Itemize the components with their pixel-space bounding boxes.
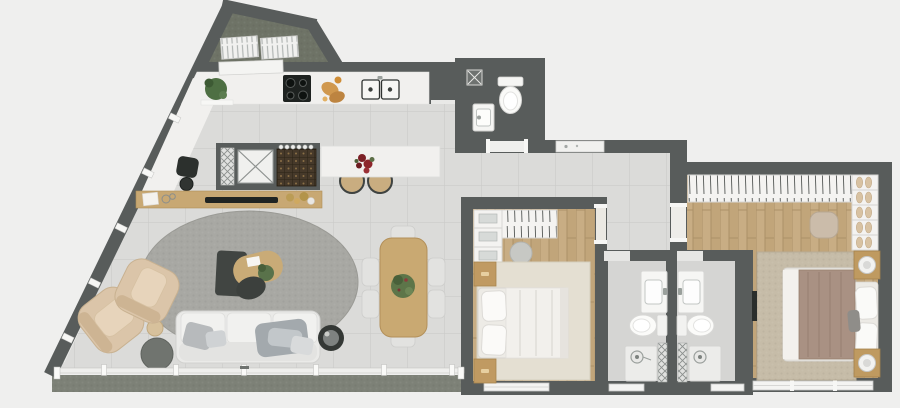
master-door-opening — [671, 206, 686, 239]
dining-chair-right-1 — [428, 258, 445, 286]
bath2-shower-partition — [678, 343, 687, 382]
shoe-2a — [856, 192, 862, 203]
bedroom2-blanket — [506, 288, 568, 358]
bedroom2-pouf — [510, 242, 532, 264]
sliding-door-handle — [240, 366, 249, 369]
bath1-window — [609, 384, 644, 391]
wine-bottle-1 — [279, 145, 283, 149]
side-tray-deco — [325, 332, 330, 337]
sink-drain-right — [388, 87, 392, 91]
tv — [205, 197, 278, 203]
wall-bedroom2-left — [461, 198, 473, 395]
bath1-shower-partition — [658, 343, 667, 382]
wine-bottle-5 — [303, 145, 307, 149]
window-desk — [175, 155, 199, 178]
bread-item-2 — [323, 97, 328, 102]
desk-plant-leaf — [258, 264, 266, 272]
coffee-table — [141, 338, 173, 370]
bath2-basin — [683, 280, 700, 304]
island-flower-leaf-1 — [370, 157, 375, 162]
fridge-handle-line — [431, 100, 455, 104]
sofa-pillow-2 — [205, 330, 227, 349]
balcony-strip-noise — [52, 375, 464, 392]
bath1-basin — [645, 280, 662, 304]
ac-slat-unit-1 — [220, 36, 258, 60]
powder-toilet-tank — [498, 77, 523, 86]
burner-1 — [286, 79, 295, 88]
master-closet-hangers — [688, 175, 852, 202]
burner-2 — [300, 80, 307, 87]
shoe-2b — [865, 192, 871, 203]
powder-door-jamb-right — [524, 139, 528, 153]
window-mullion-4 — [314, 365, 319, 376]
bath1-toilet-seat — [633, 319, 650, 332]
wall-bath-right — [735, 250, 753, 395]
window-mullion-1 — [102, 365, 107, 376]
floor-plan-svg — [0, 0, 900, 408]
master-pillow-accent — [847, 310, 861, 333]
master-lamp-bottom-inner — [863, 359, 871, 367]
master-lamp-top-inner — [863, 261, 871, 269]
wine-bottle-6 — [309, 145, 313, 149]
sideboard-dish — [308, 198, 315, 205]
niche-deco-1 — [564, 145, 567, 148]
island-flower-leaf-2 — [355, 159, 359, 163]
ac-slat-unit-2 — [260, 36, 298, 60]
window-endcap-right — [458, 367, 464, 379]
powder-door-jamb-left — [486, 139, 490, 153]
living-window-glass — [58, 368, 464, 373]
sideboard-gold-deco-1 — [286, 194, 294, 202]
shoe-3b — [865, 207, 871, 218]
bath1-shower-head-dot — [635, 355, 639, 359]
window-mullion-2 — [174, 365, 179, 376]
sideboard-gold-deco-3 — [300, 192, 309, 201]
bath2-shower-head-dot — [698, 355, 702, 359]
wine-bottle-2 — [285, 145, 289, 149]
master-window-tick-1 — [790, 380, 794, 391]
nightstand-handle-top — [481, 272, 489, 276]
floor-plan-canvas — [0, 0, 900, 408]
master-door-jamb-bottom — [670, 238, 687, 242]
window-mullion-5 — [382, 365, 387, 376]
shoe-4b — [865, 222, 871, 233]
bedroom2-pillow-1 — [481, 290, 507, 321]
island-flower-1 — [358, 154, 366, 162]
shoe-3a — [856, 207, 862, 218]
wall-master-top — [670, 162, 892, 175]
bath2-shower-tray — [689, 346, 721, 381]
wine-bottle-3 — [291, 145, 295, 149]
shoe-5a — [856, 237, 862, 248]
powder-door-opening — [488, 141, 526, 152]
folded-clothes-3 — [479, 251, 497, 260]
dining-chair-right-2 — [428, 290, 445, 318]
bedroom2-pillow-2 — [481, 324, 507, 355]
bedroom2-door-jamb-top — [594, 204, 607, 208]
shoe-5b — [865, 237, 871, 248]
burner-4 — [299, 91, 308, 100]
pantry-ladder — [221, 148, 234, 185]
master-pouf — [810, 212, 838, 238]
master-door-jamb-top — [670, 203, 687, 207]
shoe-4a — [856, 222, 862, 233]
dining-chair-left-2 — [362, 290, 379, 318]
wall-bedroom2-top — [461, 197, 607, 209]
sink-drain-left — [368, 87, 372, 91]
window-desk-stool — [180, 178, 193, 191]
master-wall-tv — [752, 291, 757, 321]
bath2-toilet-tank — [677, 315, 687, 336]
island-flower-3 — [356, 163, 362, 169]
master-sheet — [783, 270, 801, 359]
shoe-1b — [865, 177, 871, 188]
bath2-toilet-seat — [694, 319, 711, 332]
hall-niche — [556, 141, 604, 152]
centerpiece-berry-1 — [404, 278, 408, 282]
wall-bath-middle — [666, 260, 677, 395]
bedroom2-door-opening — [596, 207, 606, 241]
shoe-1a — [856, 177, 862, 188]
folded-clothes-1 — [479, 214, 497, 223]
counter-plant-leaf-2 — [219, 91, 227, 99]
bath2-faucet — [678, 288, 682, 295]
bath1-door-opening — [604, 251, 630, 261]
bath1-shower-tray — [625, 346, 657, 381]
bath1-faucet — [663, 288, 667, 295]
nightstand-handle-bottom — [481, 369, 489, 373]
burner-3 — [287, 92, 294, 99]
niche-deco-2 — [576, 145, 578, 147]
blanket-foot-fold — [560, 288, 568, 358]
kitchen-island — [321, 146, 440, 177]
island-flower-4 — [364, 168, 370, 174]
window-mullion-6 — [450, 365, 455, 376]
sink-faucet — [378, 76, 383, 80]
bath1-toilet-tank — [657, 315, 667, 336]
bath2-window — [711, 384, 744, 391]
bedroom2-door-jamb-bottom — [594, 240, 607, 244]
master-window-tick-2 — [833, 380, 837, 391]
bath2-door-opening — [677, 251, 703, 261]
powder-sink-faucet — [477, 116, 481, 120]
sideboard-gold-deco-2 — [294, 198, 300, 204]
centerpiece-leaf-1 — [393, 275, 403, 285]
centerpiece-leaf-2 — [405, 287, 413, 295]
wine-bottle-4 — [297, 145, 301, 149]
counter-plant-shelf — [201, 100, 233, 105]
wine-rack — [277, 149, 316, 186]
bread-item-1 — [335, 77, 342, 84]
fridge — [429, 72, 457, 104]
plan-items-layer — [50, 5, 892, 395]
service-shelf — [219, 60, 283, 75]
dining-chair-left-1 — [362, 258, 379, 286]
folded-clothes-2 — [479, 232, 497, 241]
centerpiece-berry-2 — [398, 289, 401, 292]
window-endcap-left — [54, 367, 60, 379]
powder-toilet-seat — [504, 92, 518, 110]
counter-plant-leaf-1 — [205, 79, 214, 88]
bedroom2-closet-hangers — [502, 210, 557, 238]
sideboard-paper — [142, 192, 158, 206]
